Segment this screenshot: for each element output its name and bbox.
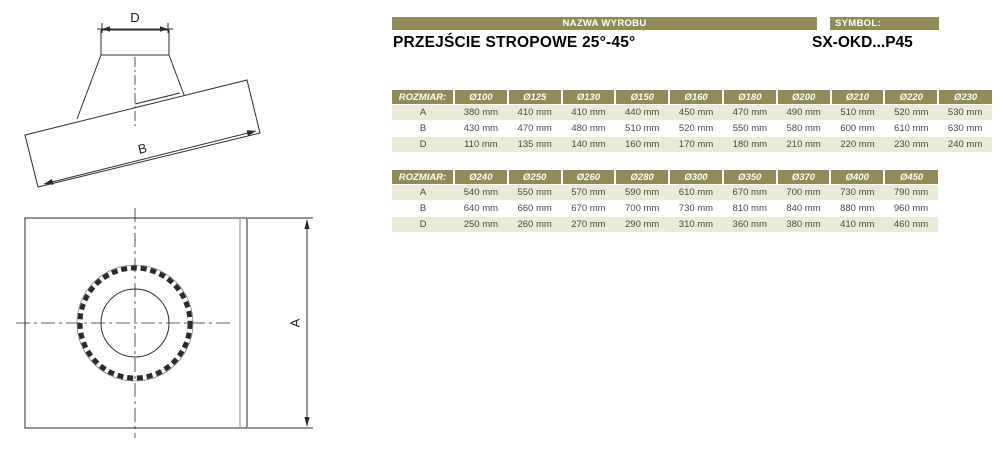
row-label-cell: B	[392, 121, 454, 137]
table-header-row: ROZMIAR:Ø240Ø250Ø260Ø280Ø300Ø350Ø370Ø400…	[392, 170, 938, 185]
dimension-value-cell: 640 mm	[454, 201, 508, 217]
dimension-value-cell: 700 mm	[777, 185, 831, 201]
diameter-header-cell: Ø125	[508, 90, 562, 105]
diameter-header-cell: Ø450	[884, 170, 938, 185]
side-view-arrowheads	[44, 26, 256, 184]
row-label-cell: A	[392, 105, 454, 121]
dimension-label-b: B	[136, 140, 148, 157]
product-name-header-bar: NAZWA WYROBU	[392, 17, 817, 30]
dimension-value-cell: 160 mm	[615, 137, 669, 153]
dimension-value-cell: 480 mm	[562, 121, 616, 137]
dimension-value-cell: 570 mm	[562, 185, 616, 201]
top-view-drawing	[16, 208, 313, 438]
technical-drawing: D B A	[0, 0, 390, 452]
dimension-value-cell: 610 mm	[669, 185, 723, 201]
dimension-value-cell: 550 mm	[508, 185, 562, 201]
diameter-header-cell: Ø180	[723, 90, 777, 105]
dimension-value-cell: 700 mm	[615, 201, 669, 217]
dimension-value-cell: 960 mm	[884, 201, 938, 217]
dimension-value-cell: 790 mm	[884, 185, 938, 201]
dimension-value-cell: 670 mm	[723, 185, 777, 201]
dimension-value-cell: 880 mm	[830, 201, 884, 217]
symbol-header-label: SYMBOL:	[830, 17, 939, 30]
dimension-value-cell: 610 mm	[884, 121, 938, 137]
diameter-header-cell: Ø210	[831, 90, 885, 105]
symbol-header-bar: SYMBOL:	[830, 17, 939, 30]
dimension-value-cell: 670 mm	[562, 201, 616, 217]
table-row-A: A380 mm410 mm410 mm440 mm450 mm470 mm490…	[392, 105, 992, 121]
product-name: PRZEJŚCIE STROPOWE 25°-45°	[393, 34, 635, 52]
datasheet-page: D B A NAZWA WYROBU SYMBOL: PRZEJŚCIE ST	[0, 0, 1003, 452]
diameter-header-cell: Ø160	[669, 90, 723, 105]
dimension-value-cell: 450 mm	[669, 105, 723, 121]
dimension-value-cell: 730 mm	[830, 185, 884, 201]
dimension-value-cell: 440 mm	[615, 105, 669, 121]
dimension-value-cell: 520 mm	[669, 121, 723, 137]
dimension-value-cell: 510 mm	[831, 105, 885, 121]
symbol-value: SX-OKD...P45	[812, 34, 912, 52]
dimension-value-cell: 530 mm	[938, 105, 992, 121]
diameter-header-cell: Ø250	[508, 170, 562, 185]
diameter-header-cell: Ø280	[615, 170, 669, 185]
dimension-value-cell: 140 mm	[562, 137, 616, 153]
row-label-cell: B	[392, 201, 454, 217]
dimension-value-cell: 510 mm	[615, 121, 669, 137]
dimension-value-cell: 240 mm	[938, 137, 992, 153]
row-label-cell: A	[392, 185, 454, 201]
diameter-header-cell: Ø100	[454, 90, 508, 105]
dimension-value-cell: 410 mm	[830, 217, 884, 233]
side-view-drawing	[25, 23, 260, 187]
diameter-header-cell: Ø230	[938, 90, 992, 105]
dimension-value-cell: 550 mm	[723, 121, 777, 137]
dimension-label-a: A	[287, 318, 302, 327]
dimension-value-cell: 460 mm	[884, 217, 938, 233]
dimension-table-2: ROZMIAR:Ø240Ø250Ø260Ø280Ø300Ø350Ø370Ø400…	[392, 170, 938, 233]
diameter-header-cell: Ø130	[562, 90, 616, 105]
row-label-cell: D	[392, 137, 454, 153]
table-row-B: B640 mm660 mm670 mm700 mm730 mm810 mm840…	[392, 201, 938, 217]
dimension-value-cell: 490 mm	[777, 105, 831, 121]
dimension-value-cell: 360 mm	[723, 217, 777, 233]
diameter-header-cell: Ø370	[777, 170, 831, 185]
diameter-header-cell: Ø200	[777, 90, 831, 105]
dimension-value-cell: 110 mm	[454, 137, 508, 153]
dimension-value-cell: 840 mm	[777, 201, 831, 217]
dimension-value-cell: 290 mm	[615, 217, 669, 233]
diameter-header-cell: Ø260	[562, 170, 616, 185]
dimension-value-cell: 410 mm	[562, 105, 616, 121]
size-header-cell: ROZMIAR:	[392, 170, 454, 185]
dimension-value-cell: 220 mm	[831, 137, 885, 153]
dimension-value-cell: 250 mm	[454, 217, 508, 233]
table-row-D: D250 mm260 mm270 mm290 mm310 mm360 mm380…	[392, 217, 938, 233]
diameter-header-cell: Ø240	[454, 170, 508, 185]
dimension-value-cell: 410 mm	[508, 105, 562, 121]
dimension-value-cell: 310 mm	[669, 217, 723, 233]
dimension-value-cell: 470 mm	[508, 121, 562, 137]
diameter-header-cell: Ø300	[669, 170, 723, 185]
diameter-header-cell: Ø220	[884, 90, 938, 105]
table-row-A: A540 mm550 mm570 mm590 mm610 mm670 mm700…	[392, 185, 938, 201]
diameter-header-cell: Ø400	[830, 170, 884, 185]
dimension-value-cell: 430 mm	[454, 121, 508, 137]
dimension-value-cell: 135 mm	[508, 137, 562, 153]
table-row-D: D110 mm135 mm140 mm160 mm170 mm180 mm210…	[392, 137, 992, 153]
dimension-value-cell: 630 mm	[938, 121, 992, 137]
dimension-value-cell: 580 mm	[777, 121, 831, 137]
dimension-value-cell: 810 mm	[723, 201, 777, 217]
size-header-cell: ROZMIAR:	[392, 90, 454, 105]
dimension-value-cell: 660 mm	[508, 201, 562, 217]
table-header-row: ROZMIAR:Ø100Ø125Ø130Ø150Ø160Ø180Ø200Ø210…	[392, 90, 992, 105]
dimension-value-cell: 520 mm	[884, 105, 938, 121]
dimension-value-cell: 590 mm	[615, 185, 669, 201]
row-label-cell: D	[392, 217, 454, 233]
product-name-header-label: NAZWA WYROBU	[392, 17, 817, 30]
dimension-value-cell: 730 mm	[669, 201, 723, 217]
dimension-value-cell: 210 mm	[777, 137, 831, 153]
dimension-table-1: ROZMIAR:Ø100Ø125Ø130Ø150Ø160Ø180Ø200Ø210…	[392, 90, 992, 153]
dimension-value-cell: 270 mm	[562, 217, 616, 233]
diameter-header-cell: Ø150	[615, 90, 669, 105]
dimension-value-cell: 380 mm	[777, 217, 831, 233]
dimension-label-d: D	[130, 10, 139, 25]
table-row-B: B430 mm470 mm480 mm510 mm520 mm550 mm580…	[392, 121, 992, 137]
dimension-value-cell: 380 mm	[454, 105, 508, 121]
b-dimension-line	[44, 131, 256, 184]
dimension-value-cell: 470 mm	[723, 105, 777, 121]
diameter-header-cell: Ø350	[723, 170, 777, 185]
dimension-value-cell: 600 mm	[831, 121, 885, 137]
dimension-value-cell: 230 mm	[884, 137, 938, 153]
dimension-value-cell: 260 mm	[508, 217, 562, 233]
dimension-value-cell: 540 mm	[454, 185, 508, 201]
dimension-value-cell: 180 mm	[723, 137, 777, 153]
dimension-value-cell: 170 mm	[669, 137, 723, 153]
